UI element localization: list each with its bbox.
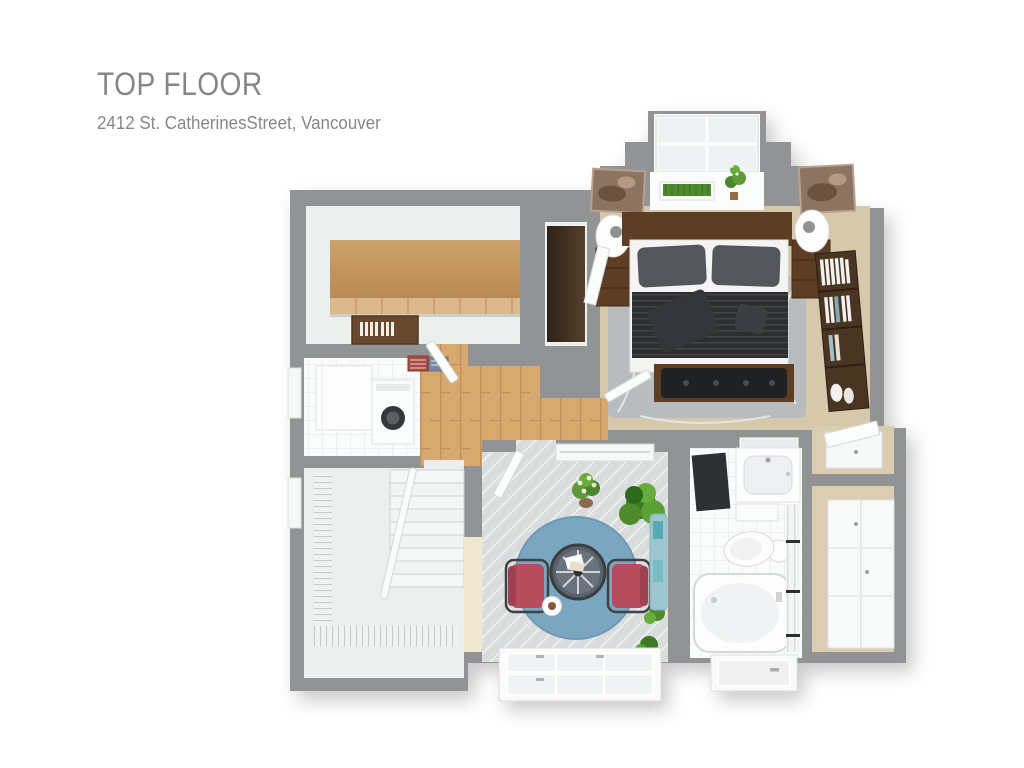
leather-foot-bench bbox=[654, 364, 794, 402]
red-armchair-right bbox=[608, 560, 650, 612]
floor-plan-page: TOP FLOOR 2412 St. CatherinesStreet, Van… bbox=[0, 0, 1024, 768]
long-wood-shelf bbox=[330, 240, 520, 317]
white-railing-ledge bbox=[556, 444, 654, 461]
teal-heater-bench bbox=[650, 514, 667, 610]
dark-bath-mat bbox=[692, 453, 731, 512]
white-side-table bbox=[543, 597, 562, 616]
cream-panel bbox=[464, 537, 482, 652]
wood-storage-chest bbox=[352, 316, 418, 344]
table-lamp-right bbox=[795, 210, 829, 252]
floor-address: 2412 St. CatherinesStreet, Vancouver bbox=[97, 113, 381, 134]
double-bed bbox=[622, 212, 792, 372]
washing-machine bbox=[372, 380, 414, 444]
floor-title: TOP FLOOR bbox=[97, 66, 363, 103]
patio-doorway bbox=[516, 440, 556, 454]
railing-balusters-bottom bbox=[314, 626, 458, 646]
white-counter bbox=[316, 366, 372, 430]
header: TOP FLOOR 2412 St. CatherinesStreet, Van… bbox=[97, 66, 399, 134]
grass-planter-box bbox=[660, 182, 714, 200]
low-cabinet bbox=[736, 504, 778, 521]
shower-screen bbox=[786, 505, 800, 652]
laundry-window bbox=[288, 368, 301, 418]
tall-white-wardrobe bbox=[828, 500, 894, 648]
bathtub bbox=[694, 574, 790, 652]
wall-art-left bbox=[591, 169, 645, 214]
bathroom-exterior-door bbox=[711, 655, 797, 691]
dark-wardrobe bbox=[547, 226, 585, 342]
railing-balusters-left bbox=[314, 472, 332, 644]
wall-art-right bbox=[799, 165, 855, 214]
vanity-sink bbox=[736, 438, 800, 502]
closet-divider-wall bbox=[812, 474, 894, 486]
stairwell-window bbox=[288, 478, 301, 528]
round-bistro-table bbox=[551, 545, 605, 599]
red-armchair-left bbox=[506, 560, 548, 612]
bottom-window-bay bbox=[499, 648, 661, 701]
